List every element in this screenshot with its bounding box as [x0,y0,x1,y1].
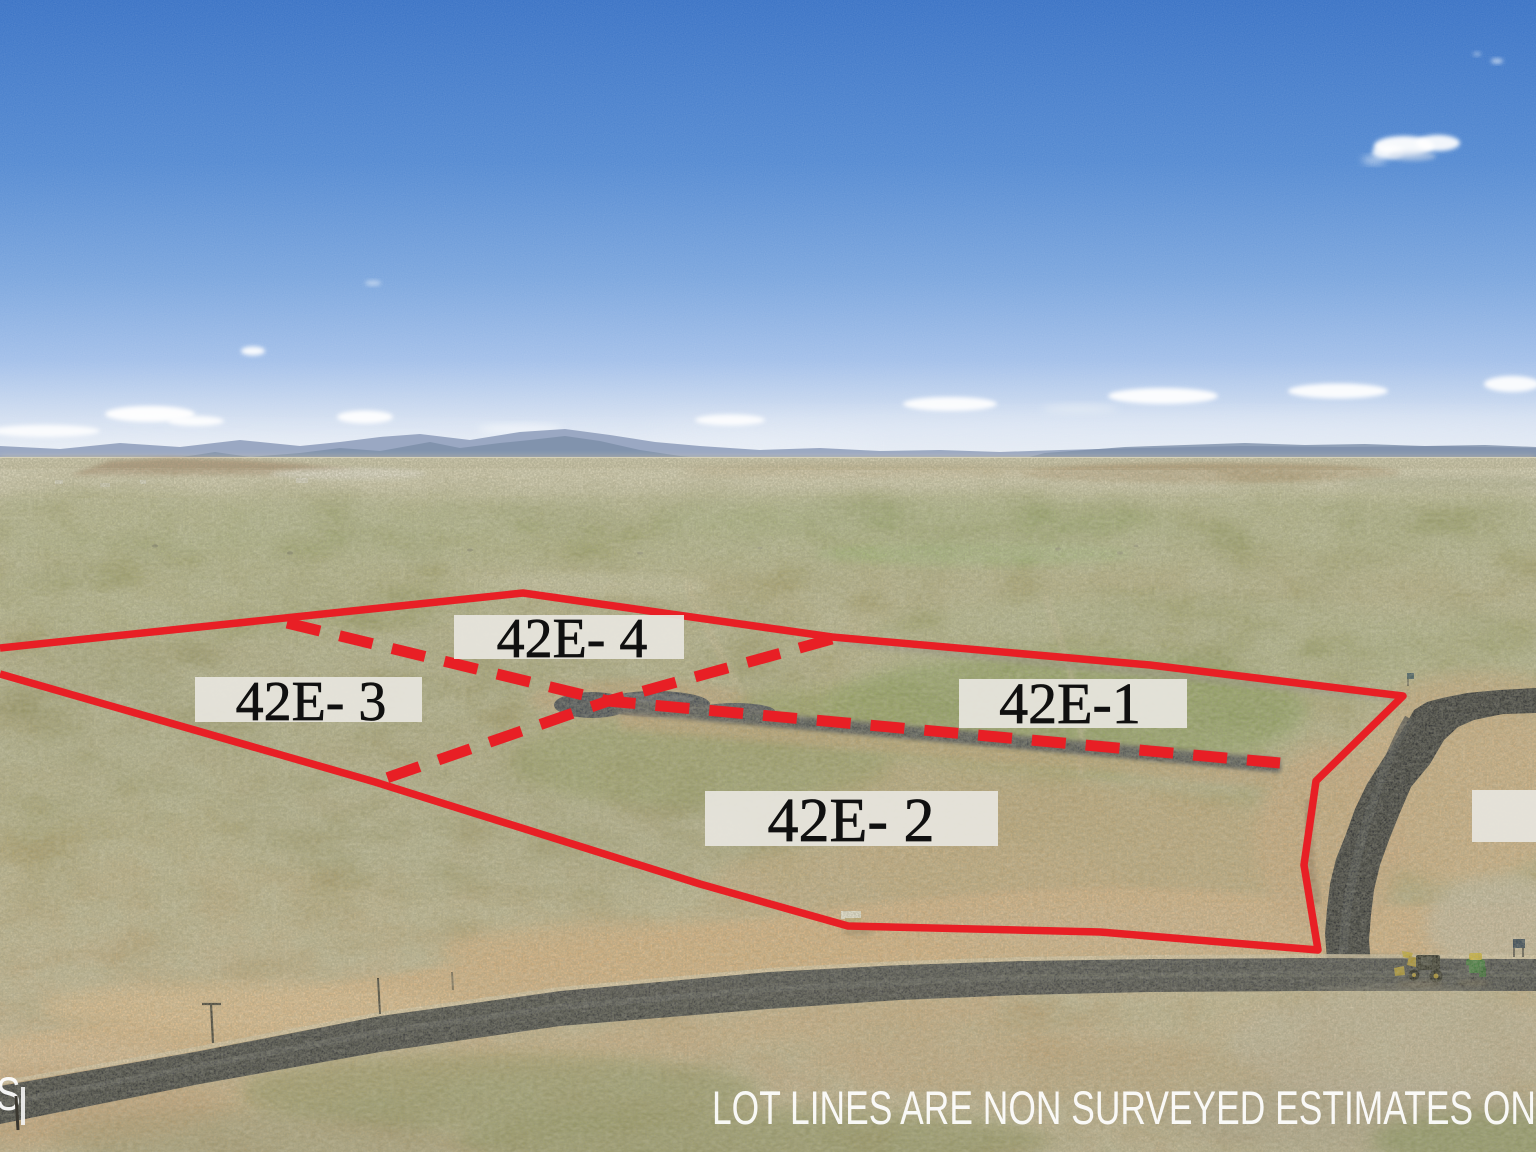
svg-text:42E-1: 42E-1 [999,671,1141,736]
svg-text:42E- 4: 42E- 4 [497,608,648,670]
svg-text:42E- 3: 42E- 3 [236,671,387,733]
svg-text:42E- 2: 42E- 2 [767,787,934,855]
svg-text:LOT LINES ARE NON SURVEYED EST: LOT LINES ARE NON SURVEYED ESTIMATES ON [712,1081,1536,1134]
